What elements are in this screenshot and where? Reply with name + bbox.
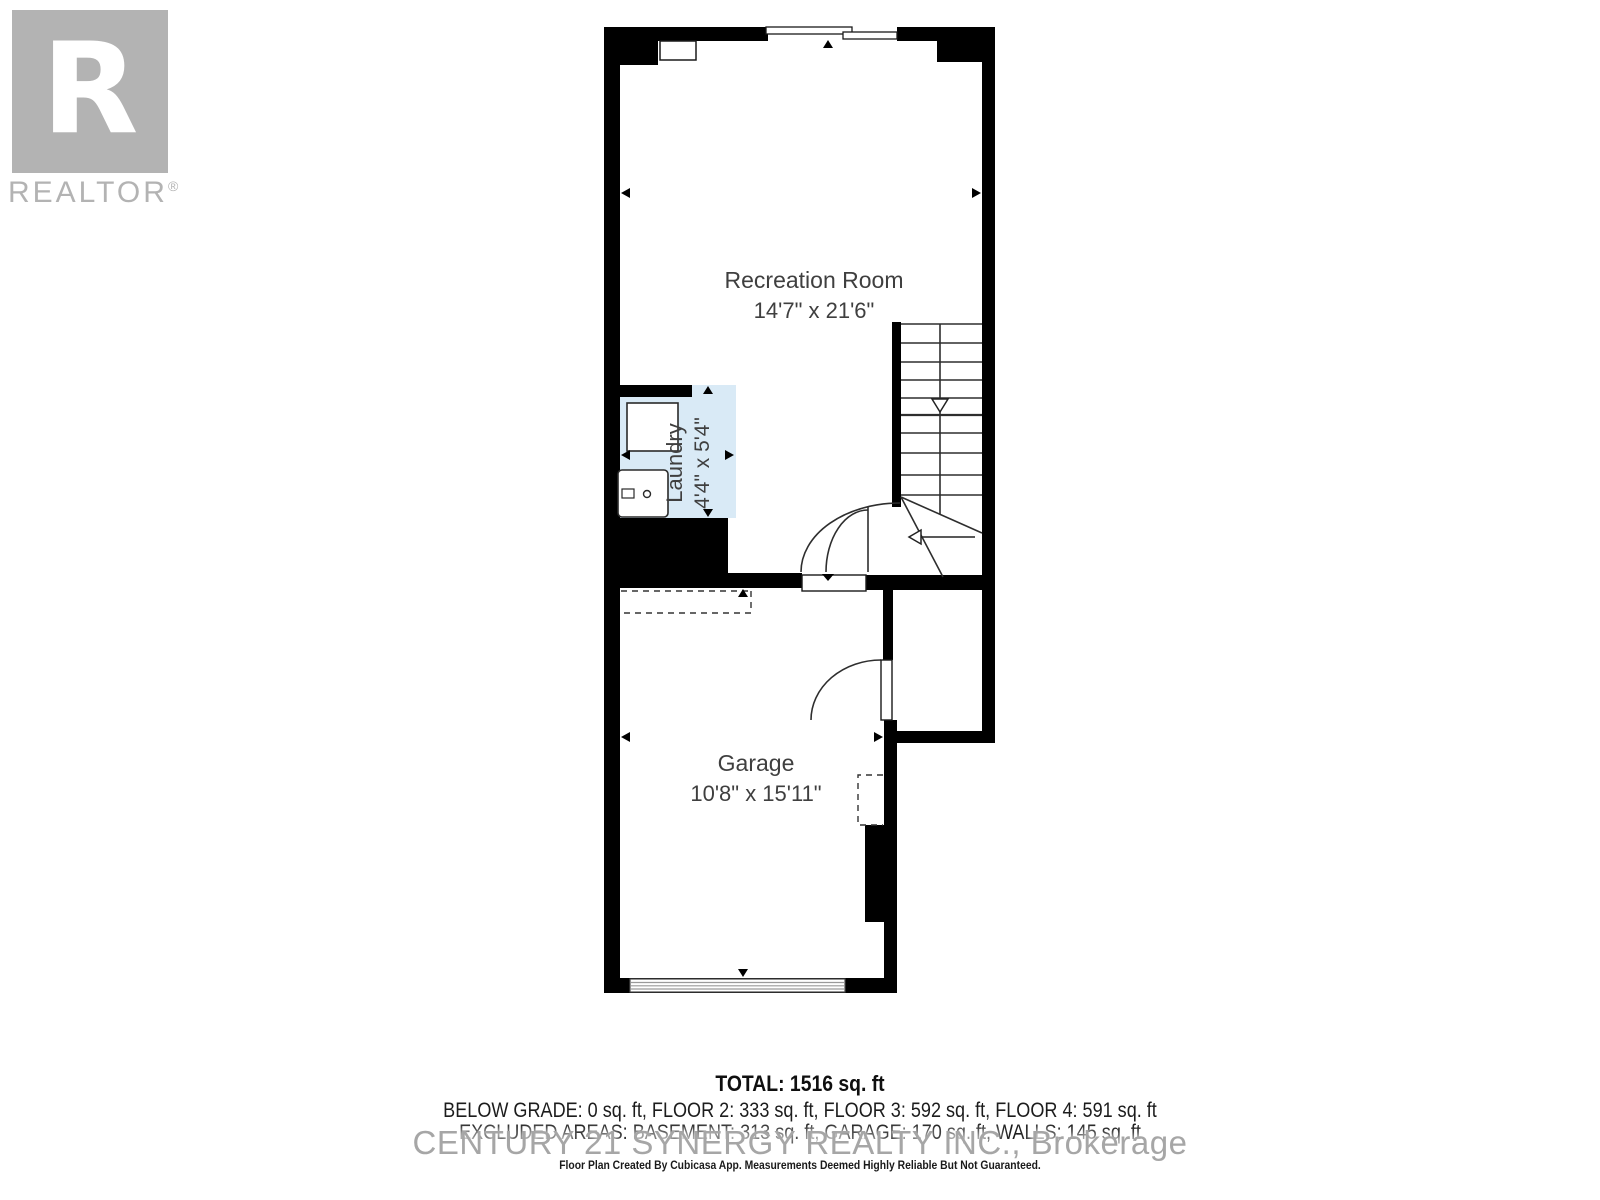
- window: [766, 27, 897, 39]
- room-label-laundry: Laundry 4'4" x 5'4": [662, 393, 720, 533]
- room-dimensions: 4'4" x 5'4": [690, 393, 715, 533]
- floor-areas-text: BELOW GRADE: 0 sq. ft, FLOOR 2: 333 sq. …: [112, 1099, 1488, 1123]
- stair-winder-arrow-icon: [909, 530, 975, 544]
- room-dimensions: 10'8" x 15'11": [556, 781, 956, 807]
- stair-down-arrow-icon: [932, 399, 948, 412]
- floor-plan-drawing: [0, 0, 1600, 1200]
- room-dimensions: 14'7" x 21'6": [614, 298, 1014, 324]
- corner-closet-box: [660, 41, 696, 60]
- garage-entry-door-leaf: [881, 660, 892, 720]
- disclaimer-text: Floor Plan Created By Cubicasa App. Meas…: [80, 1160, 1520, 1172]
- brokerage-watermark: CENTURY 21 SYNERGY REALTY INC., Brokerag…: [0, 1124, 1600, 1162]
- stair-door-threshold: [802, 575, 866, 591]
- garage-door: [630, 979, 845, 992]
- room-name: Laundry: [662, 393, 687, 533]
- room-label-recreation: Recreation Room 14'7" x 21'6": [614, 267, 1014, 324]
- total-area-text: TOTAL: 1516 sq. ft: [96, 1071, 1504, 1097]
- floor-plan-page: R REALTOR®: [0, 0, 1600, 1200]
- room-name: Garage: [556, 750, 956, 776]
- room-label-garage: Garage 10'8" x 15'11": [556, 750, 956, 807]
- room-name: Recreation Room: [614, 267, 1014, 293]
